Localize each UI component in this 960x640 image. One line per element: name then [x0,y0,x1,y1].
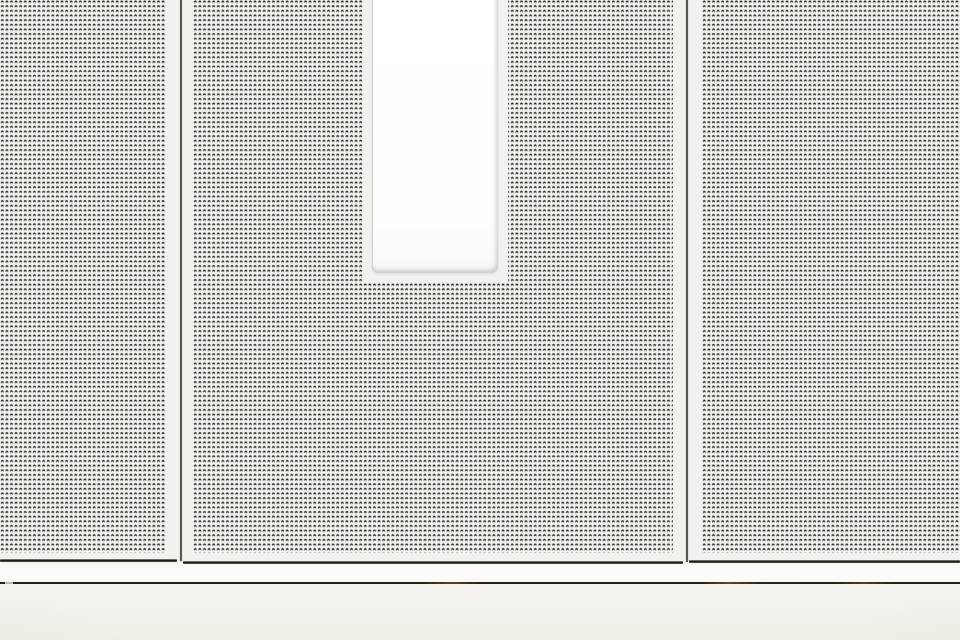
panel-bottom-edge-middle [183,561,683,565]
perforated-panel-middle [182,0,685,564]
perforation-texture [0,0,166,553]
panel-bottom-edge-left [0,559,177,563]
base-band [0,584,960,640]
fascia-band [0,563,960,582]
perforated-panel-left [0,0,180,562]
perforation-texture [702,0,960,553]
perforated-wall-photo [0,0,960,640]
panel-seam-right [686,0,689,562]
perforated-panel-right [688,0,960,563]
panel-bottom-edge-right [689,560,960,564]
panel-seam-left [180,0,183,561]
light-opening-frame [363,0,508,282]
light-opening [372,0,498,273]
reveal-shadow-line [0,582,960,584]
